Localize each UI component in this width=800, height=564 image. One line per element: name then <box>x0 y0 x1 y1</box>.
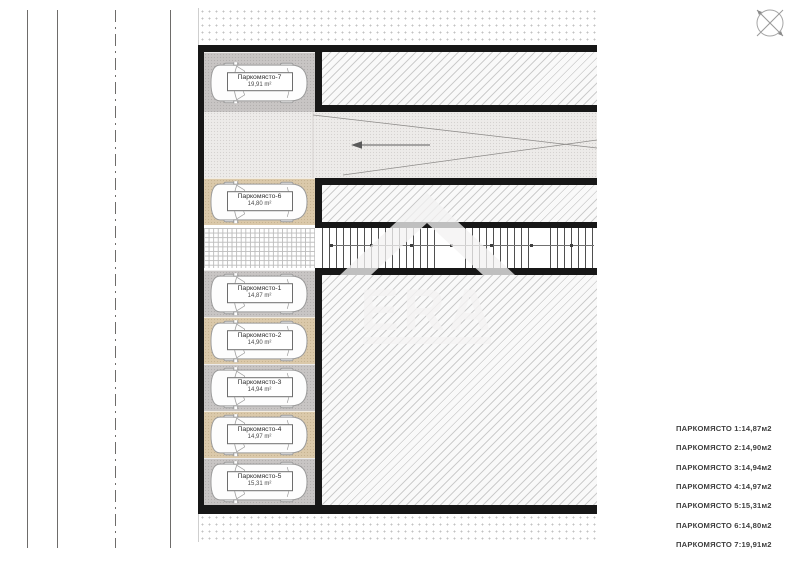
legend-value: 14,80м2 <box>741 521 771 530</box>
legend-row: ПАРКОМЯСТО 1: 14,87м2 <box>676 419 760 438</box>
slot-label: Паркомясто-5 15,31 m² <box>227 471 293 491</box>
parking-floor-plan: Паркомясто-7 19,91 m² Паркомясто-6 14,80… <box>0 0 800 564</box>
ramp-lines-icon <box>204 112 597 178</box>
slot-area: 15,31 m² <box>231 482 289 490</box>
parking-slot-3: Паркомясто-3 14,94 m² <box>204 364 315 411</box>
parking-slot-5: Паркомясто-5 15,31 m² <box>204 458 315 505</box>
legend-row: ПАРКОМЯСТО 7: 19,91м2 <box>676 535 760 554</box>
parking-slot-1: Паркомясто-1 14,87 m² <box>204 270 315 317</box>
slot-area: 19,91 m² <box>231 82 289 90</box>
road-line-solid <box>27 10 28 548</box>
legend-label: ПАРКОМЯСТО 6: <box>676 521 741 530</box>
legend-value: 14,94м2 <box>741 463 771 472</box>
driveway-ramp <box>204 112 597 178</box>
wall <box>315 268 322 505</box>
parking-slot-4: Паркомясто-4 14,97 m² <box>204 411 315 458</box>
slot-name: Паркомясто-5 <box>231 473 289 481</box>
legend-row: ПАРКОМЯСТО 2: 14,90м2 <box>676 438 760 457</box>
slot-name: Паркомясто-1 <box>231 285 289 293</box>
legend-value: 19,91м2 <box>741 540 771 549</box>
legend-row: ПАРКОМЯСТО 5: 15,31м2 <box>676 496 760 515</box>
wall <box>315 222 597 228</box>
road-centerline-dashdot <box>115 10 116 548</box>
parking-slot-7: Паркомясто-7 19,91 m² <box>204 52 315 112</box>
legend-value: 14,87м2 <box>741 424 771 433</box>
sidewalk-top <box>198 8 598 45</box>
slot-label: Паркомясто-4 14,97 m² <box>227 424 293 444</box>
stair-treads <box>322 228 440 268</box>
wall <box>198 45 597 52</box>
slot-label: Паркомясто-7 19,91 m² <box>227 72 293 92</box>
slot-area: 14,94 m² <box>231 388 289 396</box>
slot-name: Паркомясто-6 <box>231 193 289 201</box>
wall <box>315 105 597 112</box>
hatched-area-main <box>322 275 597 505</box>
wall <box>198 505 597 514</box>
wall <box>315 52 322 112</box>
legend-row: ПАРКОМЯСТО 3: 14,94м2 <box>676 458 760 477</box>
hatched-area-middle <box>322 185 597 222</box>
wall <box>315 268 597 275</box>
stair-treads <box>465 228 530 268</box>
legend-label: ПАРКОМЯСТО 3: <box>676 463 741 472</box>
legend-row: ПАРКОМЯСТО 6: 14,80м2 <box>676 515 760 534</box>
legend-row: ПАРКОМЯСТО 4: 14,97м2 <box>676 477 760 496</box>
hatched-area-top <box>322 52 597 105</box>
north-arrow-icon <box>748 2 792 44</box>
slot-name: Паркомясто-4 <box>231 426 289 434</box>
slot-area: 14,80 m² <box>231 202 289 210</box>
legend-label: ПАРКОМЯСТО 2: <box>676 443 741 452</box>
legend-value: 15,31м2 <box>741 501 771 510</box>
stair-centerline <box>330 245 594 246</box>
slot-area: 14,97 m² <box>231 435 289 443</box>
legend-label: ПАРКОМЯСТО 4: <box>676 482 741 491</box>
legend-label: ПАРКОМЯСТО 7: <box>676 540 741 549</box>
slot-label: Паркомясто-2 14,90 m² <box>227 330 293 350</box>
legend-label: ПАРКОМЯСТО 5: <box>676 501 741 510</box>
slot-name: Паркомясто-7 <box>231 74 289 82</box>
legend: ПАРКОМЯСТО 1: 14,87м2 ПАРКОМЯСТО 2: 14,9… <box>676 419 760 554</box>
parking-slot-2: Паркомясто-2 14,90 m² <box>204 317 315 364</box>
stairs <box>322 228 597 268</box>
slot-label: Паркомясто-3 14,94 m² <box>227 377 293 397</box>
parking-slot-6: Паркомясто-6 14,80 m² <box>204 178 315 225</box>
legend-value: 14,97м2 <box>741 482 771 491</box>
sidewalk-bottom <box>198 514 598 542</box>
slot-label: Паркомясто-6 14,80 m² <box>227 191 293 211</box>
legend-value: 14,90м2 <box>741 443 771 452</box>
road-line-solid <box>170 10 171 548</box>
slot-label: Паркомясто-1 14,87 m² <box>227 283 293 303</box>
stair-treads <box>550 228 597 268</box>
slot-name: Паркомясто-2 <box>231 332 289 340</box>
grid-ramp-pad <box>204 228 315 268</box>
arrow-left-icon <box>351 141 430 149</box>
slot-area: 14,90 m² <box>231 341 289 349</box>
wall <box>315 178 597 185</box>
slot-area: 14,87 m² <box>231 294 289 302</box>
slot-name: Паркомясто-3 <box>231 379 289 387</box>
legend-label: ПАРКОМЯСТО 1: <box>676 424 741 433</box>
road-line-solid <box>57 10 58 548</box>
